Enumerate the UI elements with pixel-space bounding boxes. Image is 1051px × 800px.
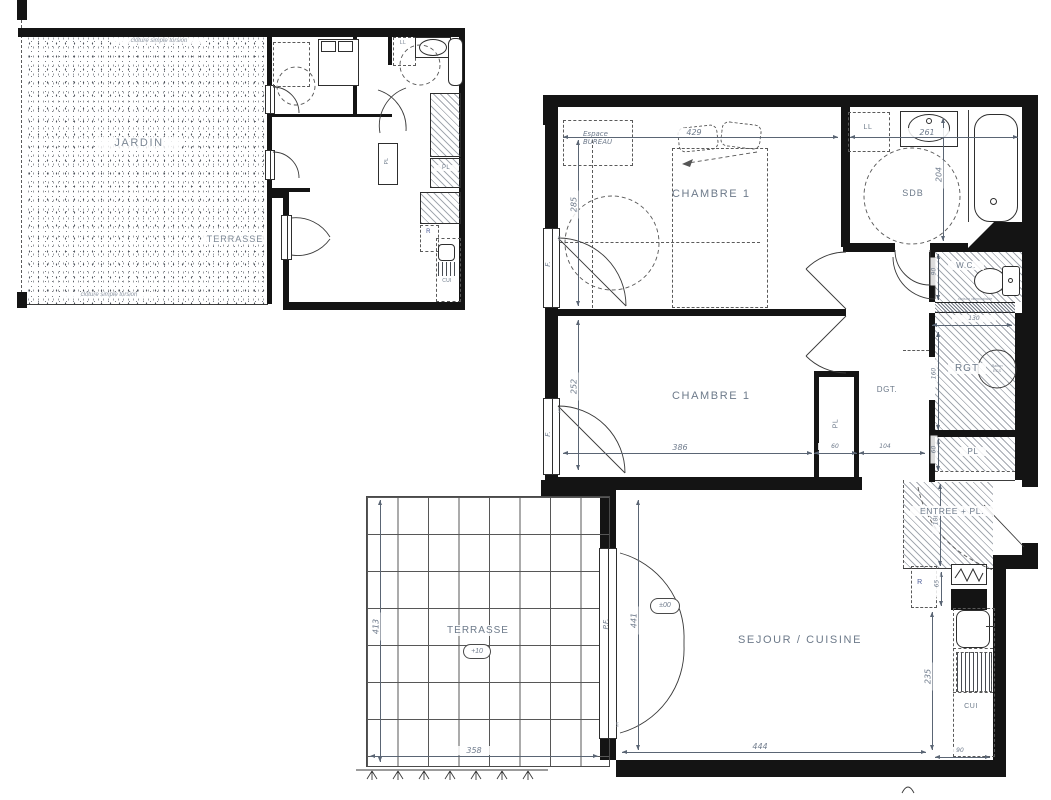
dim-204: 204 <box>935 161 944 189</box>
dim-429: 429 <box>672 128 716 137</box>
dim-line <box>370 756 598 757</box>
vegetation-marks <box>356 770 914 793</box>
dim-line <box>932 325 1012 326</box>
panel-zigzag <box>955 569 983 581</box>
bed-arrow <box>682 159 693 167</box>
shutter-vr1-label: VR <box>557 232 562 246</box>
dim-line <box>938 439 939 471</box>
dim-60-pl: 60 <box>931 436 938 464</box>
dim-90-wc: 90 <box>931 258 938 286</box>
dim-90-cui: 90 <box>946 747 974 754</box>
dim-386: 386 <box>658 443 702 452</box>
dim-line <box>940 484 941 566</box>
dim-130: 130 <box>952 315 996 322</box>
dgt-label: DGT. <box>872 385 902 394</box>
dim-line <box>859 453 925 454</box>
pl-right-label: PL <box>960 447 986 456</box>
bureau-label-line2: BUREAU <box>583 138 612 146</box>
dim-line <box>814 453 857 454</box>
window-f1-label: F. <box>544 254 552 274</box>
dim-line <box>938 254 939 300</box>
water-heater-label: Ballon ECS <box>986 363 1008 373</box>
fridge-label: R <box>913 579 927 586</box>
dim-line <box>938 332 939 430</box>
pl-closet-label: PL <box>833 414 840 434</box>
wc-label: W.C. <box>948 261 984 270</box>
dim-252: 252 <box>570 373 579 401</box>
dim-line <box>578 140 579 306</box>
clearance-circles <box>277 45 993 570</box>
dim-441: 441 <box>630 607 639 635</box>
dim-line <box>850 137 1018 138</box>
chambre2-label: CHAMBRE 1 <box>672 390 746 402</box>
dim-358: 358 <box>452 746 496 755</box>
ll-label: LL <box>856 124 880 131</box>
terrasse-label: TERRASSE <box>438 625 518 636</box>
plan-linework-svg <box>0 0 1051 800</box>
dim-line <box>935 757 990 758</box>
cui-label: CUI <box>956 703 986 710</box>
sdb-label: SDB <box>893 188 933 198</box>
sejour-level: ±00 <box>650 598 680 614</box>
chambre1-label: CHAMBRE 1 <box>672 188 746 200</box>
floor-plan: clôture simple torsion clôture simple to… <box>0 0 1051 800</box>
sejour-label: SEJOUR / CUISINE <box>738 634 856 646</box>
dim-235: 235 <box>924 663 933 691</box>
rgt-label: RGT <box>948 363 986 374</box>
entree-label: ENTREE + PL. <box>910 506 994 516</box>
water-heater-line2: ECS <box>993 368 1001 373</box>
dim-261: 261 <box>905 128 949 137</box>
dim-line <box>622 752 926 753</box>
dim-65: 65 <box>934 570 941 598</box>
shutter-vr3-label: VR <box>615 718 620 732</box>
dim-160: 160 <box>931 360 938 388</box>
door-arcs <box>273 87 1024 733</box>
window-f2-label: F. <box>544 424 552 444</box>
dim-line <box>563 453 812 454</box>
dim-60-closet: 60 <box>818 443 852 450</box>
dim-line <box>941 572 942 606</box>
bureau-label-line1: Espace <box>583 130 608 138</box>
window-pf-label: P.F. <box>602 612 610 636</box>
partition-note: cloison démontable <box>940 296 1010 301</box>
shutter-vr2-label: VR <box>557 404 562 418</box>
dim-285: 285 <box>570 191 579 219</box>
terrasse-level: +10 <box>463 644 491 659</box>
dim-444: 444 <box>738 742 782 751</box>
bureau-label: Espace BUREAU <box>583 130 629 146</box>
dim-104: 104 <box>868 443 902 450</box>
dim-413: 413 <box>372 613 381 641</box>
